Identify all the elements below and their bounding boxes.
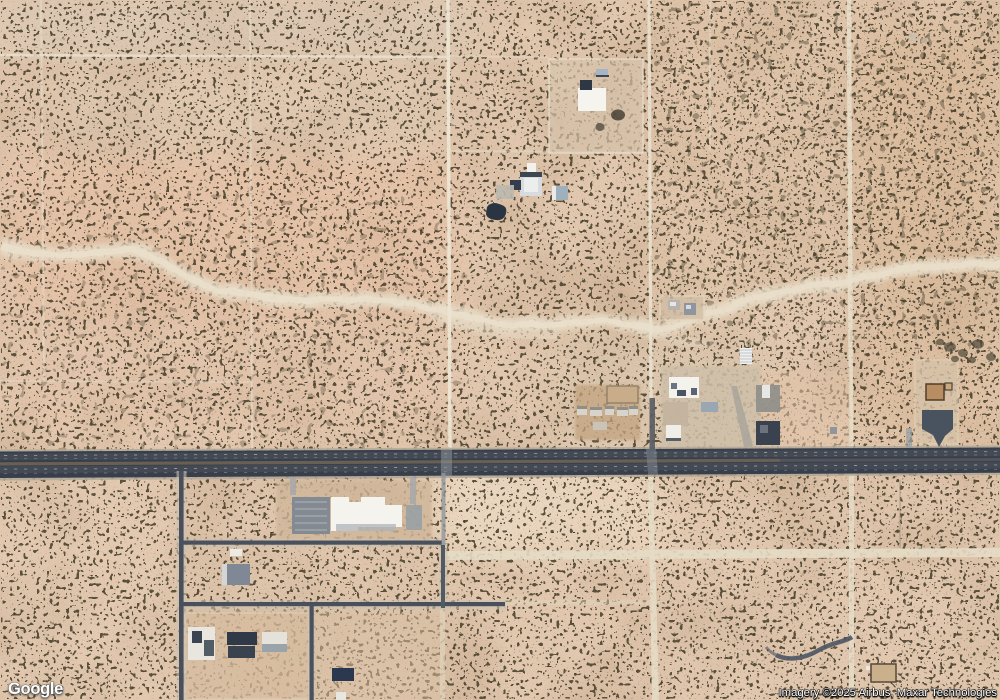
svg-text:Imagery ©2025 Airbus, Maxar Te: Imagery ©2025 Airbus, Maxar Technologies (779, 687, 998, 699)
svg-text:Google: Google (8, 680, 63, 698)
